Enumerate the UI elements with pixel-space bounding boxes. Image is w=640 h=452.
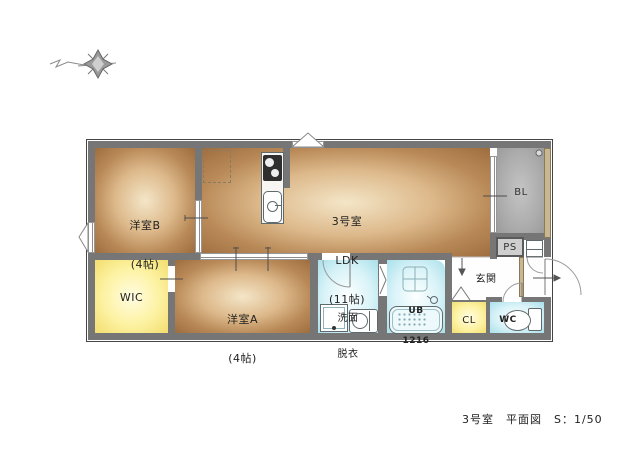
balcony-window xyxy=(490,156,497,233)
room-name: 洋室A xyxy=(175,313,310,326)
wall-right-mid xyxy=(544,238,551,257)
floor-plan-canvas: 洋室B (4帖) 3号室 LDK (11帖) BL PS WIC 洋室A (4帖… xyxy=(0,0,640,452)
refrigerator-space xyxy=(203,150,231,183)
room-name: LDK xyxy=(297,254,397,267)
wall-kitchen-stub xyxy=(283,141,290,188)
label-wic: WIC xyxy=(95,291,168,304)
plan-caption: 3号室 平面図 S：1/50 xyxy=(462,411,603,427)
wall-genkan-strip xyxy=(519,257,524,297)
sliding-door-yoshitsu-b xyxy=(195,200,202,253)
kitchen-sink-icon xyxy=(263,191,282,223)
wall-right-low xyxy=(544,297,551,340)
room-unit: 3号室 xyxy=(297,215,397,228)
label-senmen: 洗面 脱衣 xyxy=(318,289,378,385)
stove-icon xyxy=(263,155,282,181)
room-name: 洋室B xyxy=(95,219,195,232)
label-wc: WC xyxy=(496,314,520,327)
room-size: (4帖) xyxy=(95,258,195,271)
label-balcony: BL xyxy=(505,186,537,199)
label-yoshitsu-a: 洋室A (4帖) xyxy=(175,287,310,391)
wall-wc-top-right xyxy=(522,297,544,302)
senmen-line2: 脱衣 xyxy=(318,349,378,361)
ub-name: UB xyxy=(387,306,445,316)
opening-wc-door xyxy=(502,297,522,302)
ub-size: 1216 xyxy=(387,336,445,346)
compass-icon xyxy=(50,50,116,78)
wall-cl-top xyxy=(451,300,487,302)
opening-entrance-door xyxy=(544,257,551,297)
sliding-door-yoshitsu-a xyxy=(200,253,308,260)
label-cl: CL xyxy=(451,314,487,327)
window-left xyxy=(88,222,95,253)
window-top xyxy=(292,141,324,148)
label-genkan: 玄関 xyxy=(456,273,516,286)
wall-balcony-edge xyxy=(544,148,551,238)
label-ps: PS xyxy=(496,241,524,254)
label-yoshitsu-b: 洋室B (4帖) xyxy=(95,193,195,297)
shoe-cabinet xyxy=(526,240,543,257)
room-size: (4帖) xyxy=(175,352,310,365)
label-unit-bath: UB 1216 xyxy=(387,286,445,366)
senmen-line1: 洗面 xyxy=(318,313,378,325)
